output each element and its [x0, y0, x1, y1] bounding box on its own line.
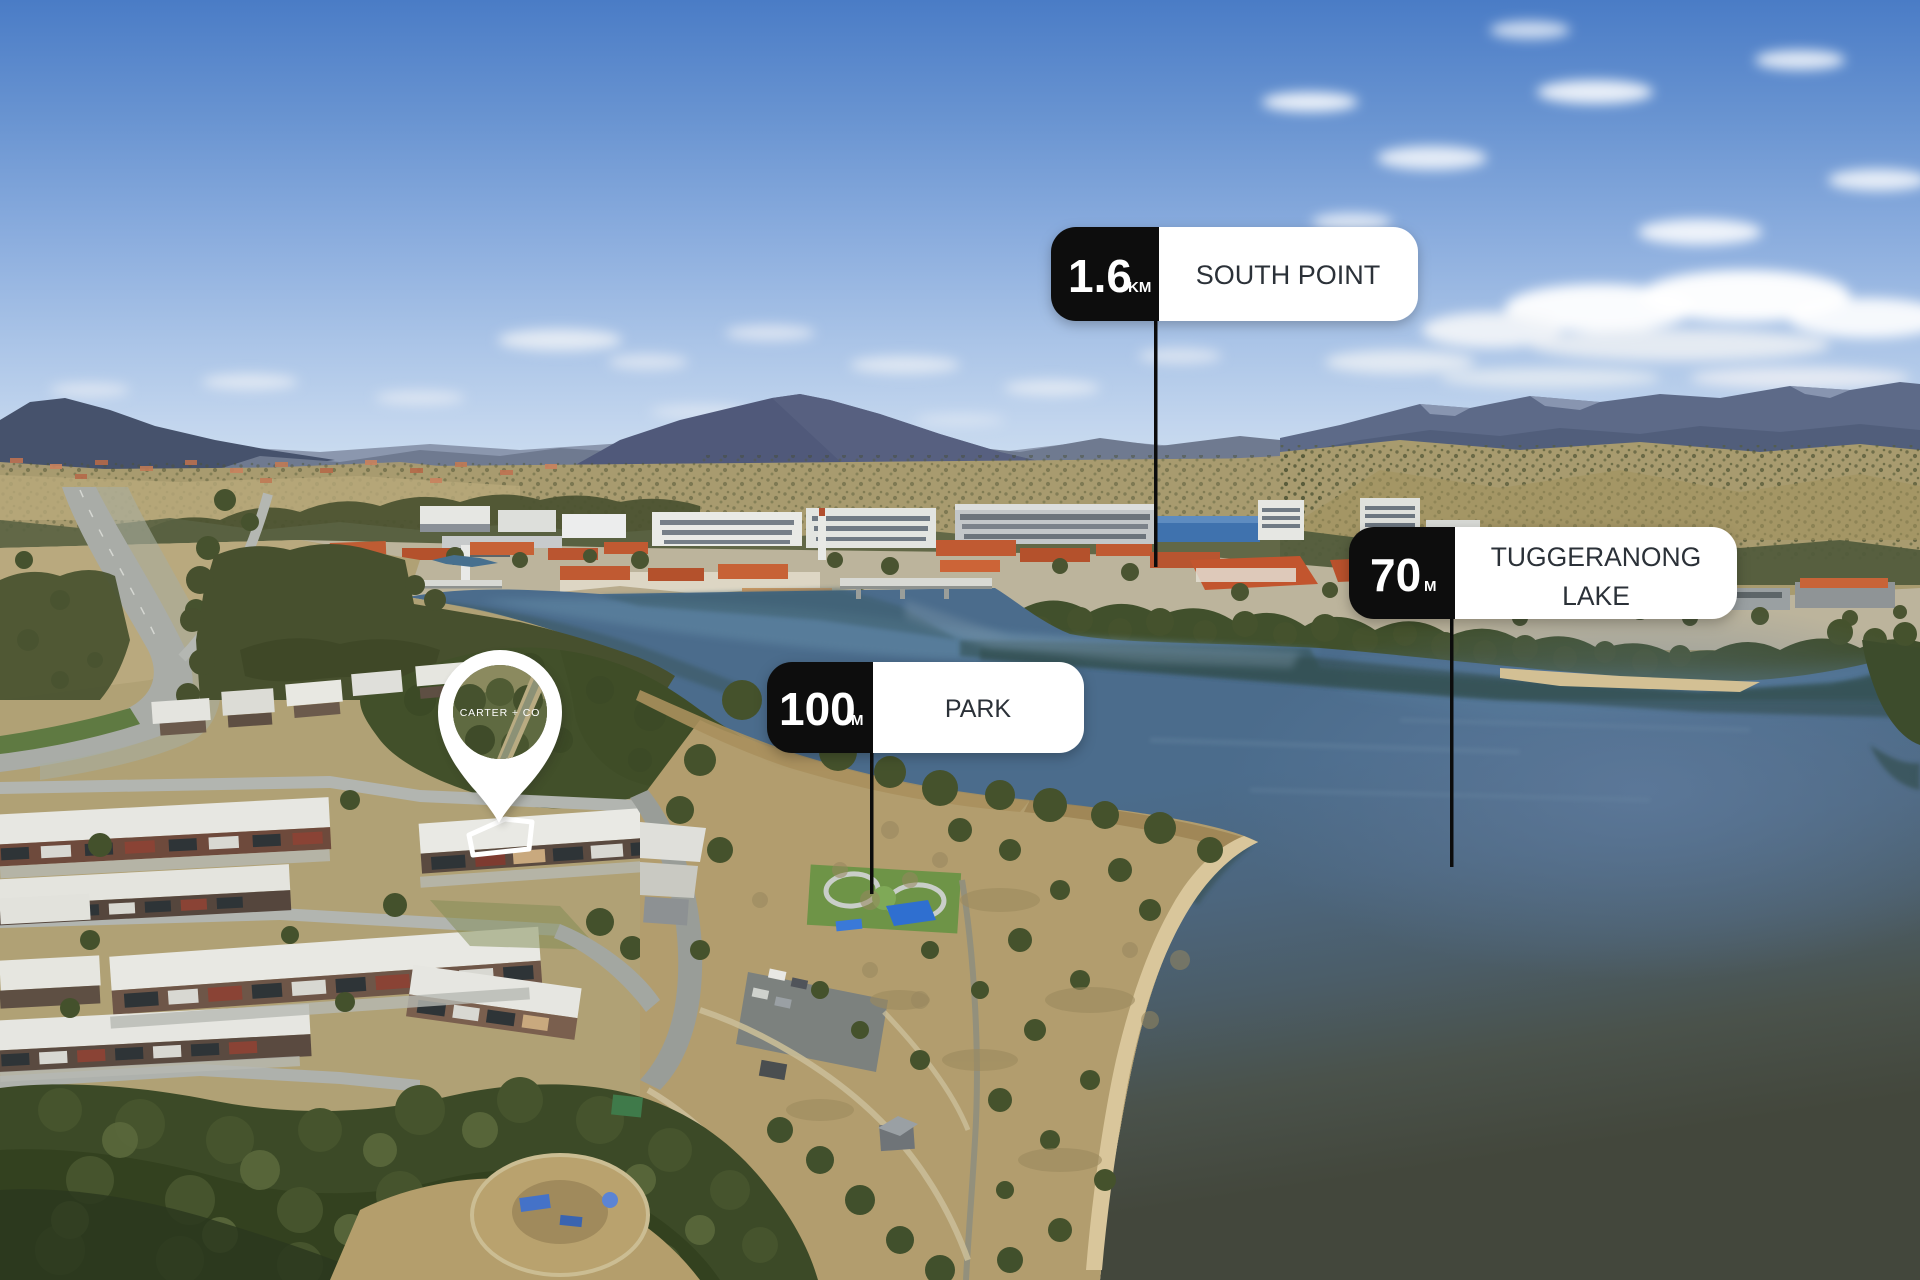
svg-text:M: M	[1424, 578, 1437, 595]
svg-text:70: 70	[1370, 549, 1421, 601]
svg-text:TUGGERANONG: TUGGERANONG	[1491, 542, 1702, 572]
svg-text:100: 100	[779, 683, 856, 735]
svg-text:1.6: 1.6	[1068, 250, 1132, 302]
svg-text:SOUTH POINT: SOUTH POINT	[1196, 260, 1381, 290]
svg-text:KM: KM	[1128, 279, 1151, 296]
svg-text:M: M	[851, 712, 864, 729]
svg-text:CARTER + CO: CARTER + CO	[460, 707, 541, 719]
svg-text:LAKE: LAKE	[1562, 581, 1630, 611]
svg-text:PARK: PARK	[945, 695, 1012, 723]
